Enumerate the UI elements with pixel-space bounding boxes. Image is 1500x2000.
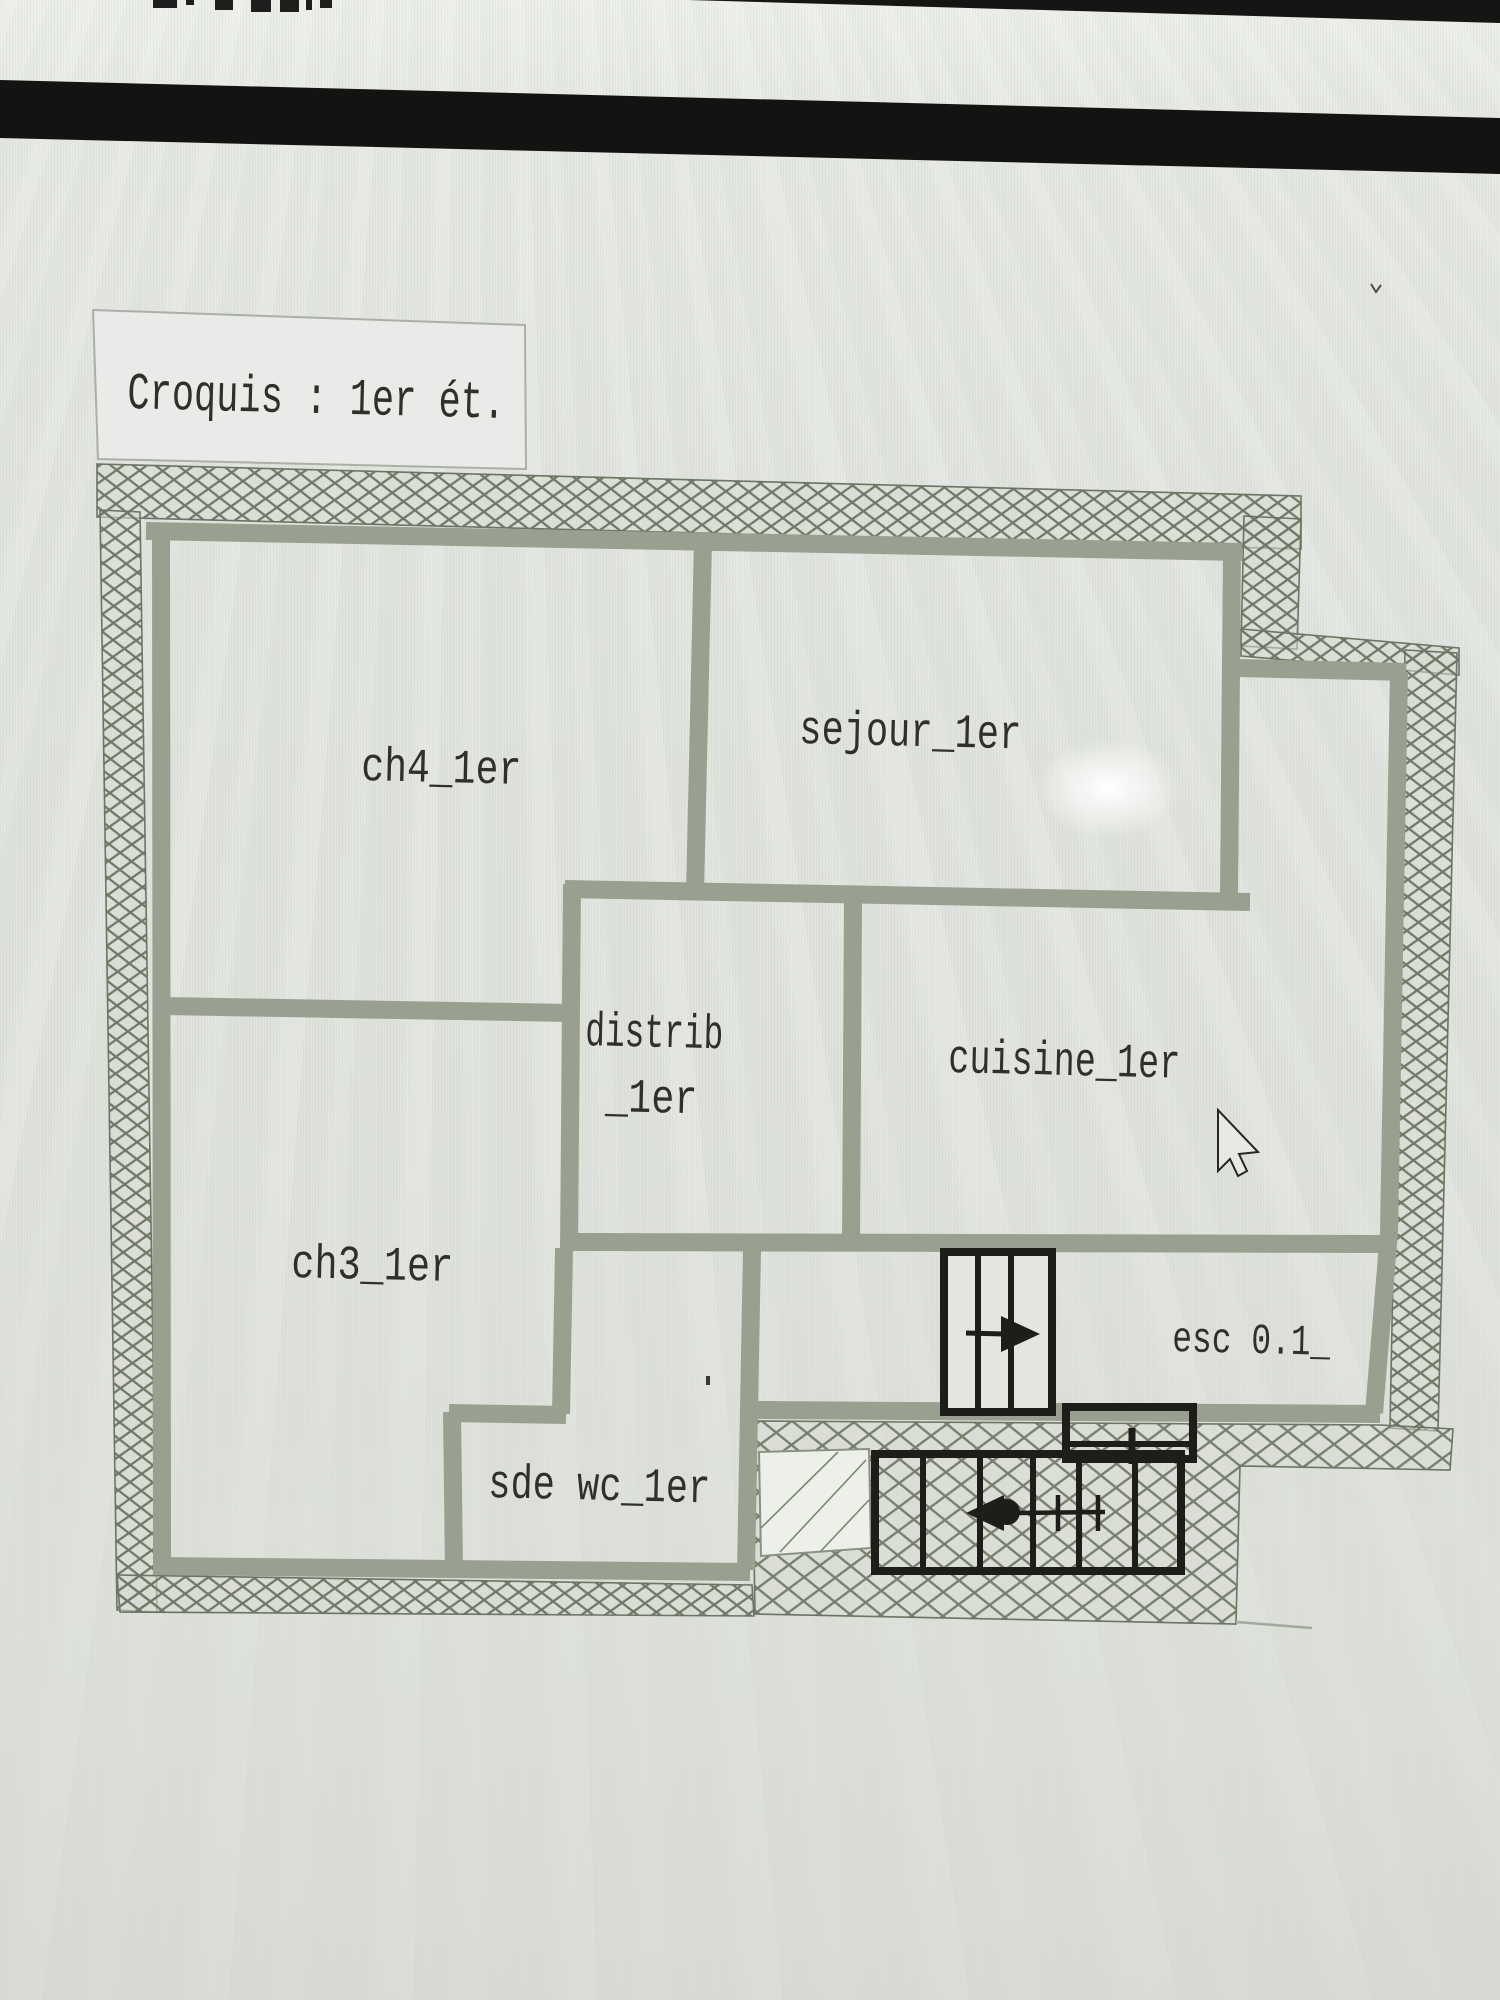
svg-text:_1er: _1er	[604, 1072, 698, 1128]
svg-text:distrib: distrib	[585, 1006, 724, 1063]
svg-text:esc 0.1_: esc 0.1_	[1172, 1315, 1331, 1368]
svg-text:ch4_1er: ch4_1er	[361, 741, 522, 799]
svg-text:Croquis : 1er ét.: Croquis : 1er ét.	[127, 365, 506, 434]
svg-text:sde wc_1er: sde wc_1er	[488, 1458, 711, 1517]
svg-text:cuisine_1er: cuisine_1er	[948, 1033, 1181, 1093]
svg-text:ch3_1er: ch3_1er	[291, 1238, 454, 1296]
svg-text:sejour_1er: sejour_1er	[799, 704, 1022, 763]
